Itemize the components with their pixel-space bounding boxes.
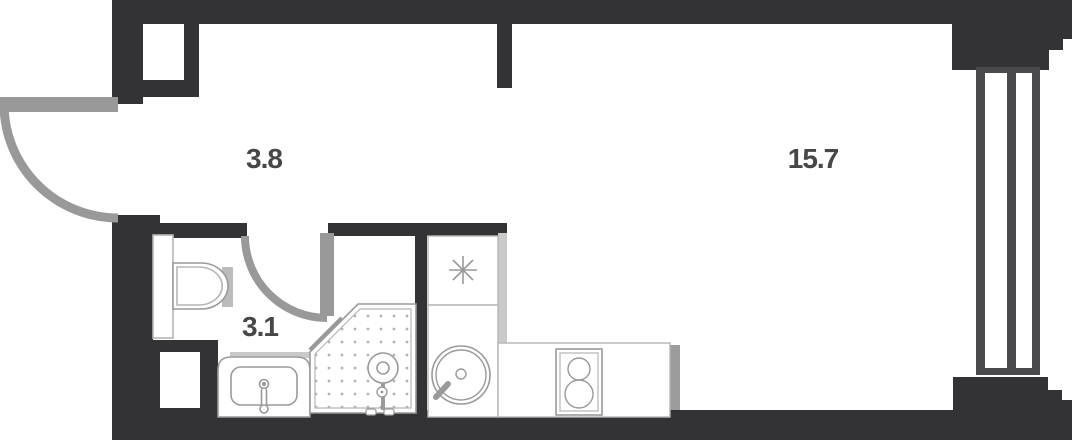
bathroom-door-leaf [320, 233, 334, 316]
shower-drain-dot [381, 391, 384, 394]
vent-asterisk-icon [449, 256, 477, 284]
entry-door-leaf [0, 97, 118, 112]
toilet-bowl-inner [177, 267, 222, 305]
shower-tray-inner [315, 309, 411, 408]
mullion-1 [976, 70, 985, 374]
wall-bay-bottom [953, 377, 1048, 410]
sink-faucet-knob [260, 405, 268, 413]
stove-burner-large [565, 380, 593, 408]
floor-plan: 3.8 15.7 3.1 [0, 0, 1074, 440]
shower-foot-right [384, 409, 394, 415]
wall-bay-top-step1 [1049, 24, 1063, 50]
wall-bay-bottom-step2 [1062, 400, 1072, 410]
room-area-living-room: 15.7 [788, 143, 839, 175]
wall-top-stub [497, 24, 512, 88]
toilet-cistern [153, 235, 173, 338]
mullion-3 [1032, 70, 1040, 374]
floor-plan-drawing [0, 0, 1074, 440]
stove-burner-small [568, 358, 590, 380]
room-area-hallway: 3.8 [246, 143, 282, 175]
kitchen [428, 236, 670, 417]
wall-top [112, 0, 1072, 24]
bathroom-sink [218, 357, 310, 417]
shaft-niche-top [143, 24, 184, 80]
mullion-2 [1007, 70, 1016, 374]
room-area-bathroom: 3.1 [242, 311, 278, 343]
shower-head-inner [377, 362, 389, 374]
mullion-bottom-rail [976, 368, 1040, 375]
bay-window-mullions [976, 67, 1040, 375]
entry-door-swing-arc [4, 104, 118, 218]
kitchen-duct-edge [498, 233, 507, 343]
counter-right-edge [670, 345, 680, 410]
toilet [153, 235, 228, 338]
wall-bay-bottom-step1 [1048, 390, 1062, 410]
wall-bay-top [952, 24, 1049, 70]
mullion-top-rail [976, 67, 1040, 73]
wall-bay-top-step2 [1063, 24, 1072, 39]
sink-faucet-dot [263, 383, 266, 386]
shower-foot-left [366, 409, 376, 415]
shaft-niche-bottom [160, 352, 200, 408]
kitchen-sink-drain [456, 369, 466, 379]
bathroom-door-swing-arc [245, 236, 327, 318]
